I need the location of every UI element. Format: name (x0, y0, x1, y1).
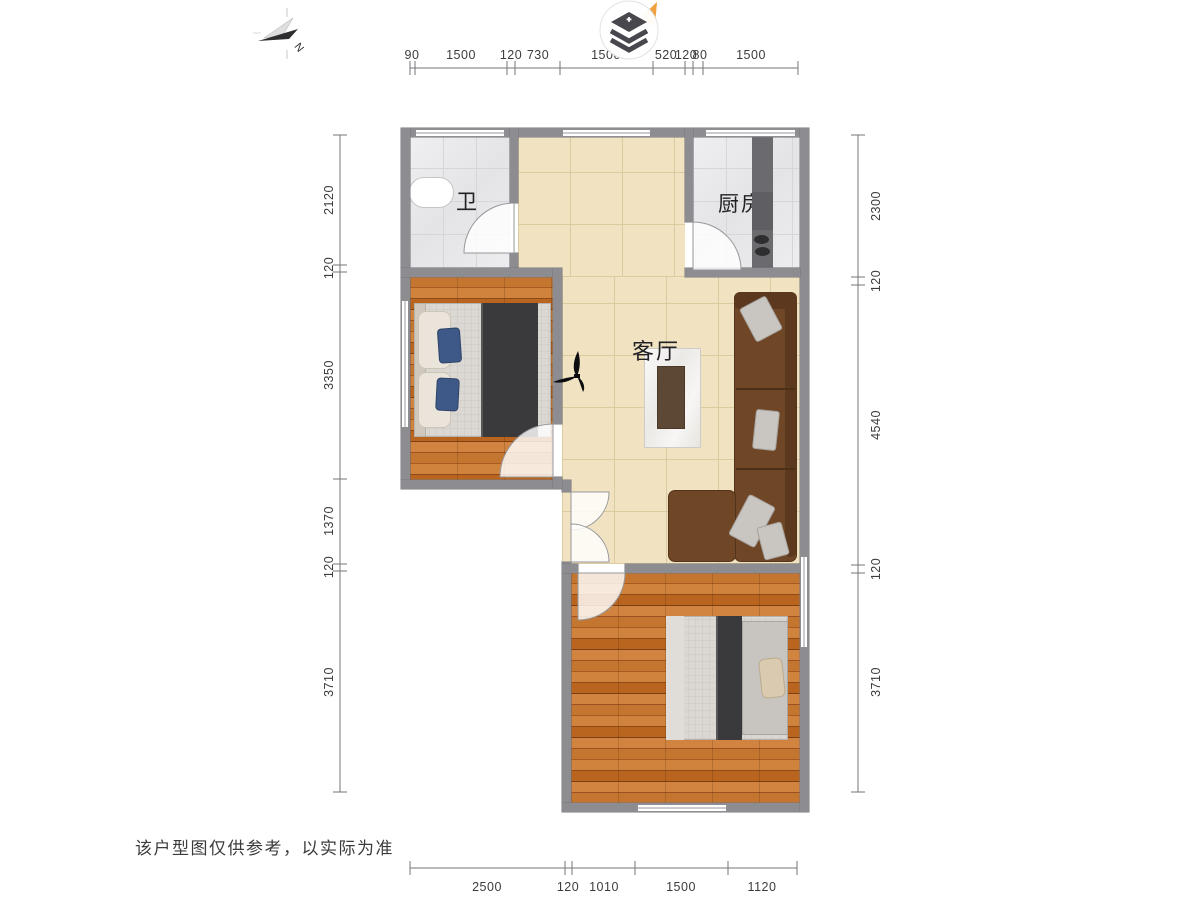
dim-top: 520 (655, 48, 677, 62)
dim-left: 120 (322, 257, 336, 279)
dim-top: 1500 (736, 48, 766, 62)
window-bedroom2-bottom (637, 804, 727, 812)
dim-left: 2120 (322, 185, 336, 215)
window-top-living (562, 129, 651, 137)
bedroom2-blanket (716, 616, 742, 740)
wall-bathroom-right-upper (510, 128, 518, 203)
top-ticks (410, 61, 798, 75)
bathroom-label: 卫 (456, 186, 479, 216)
window-right-side (800, 556, 808, 648)
stove-burner (755, 247, 770, 256)
wall-bedroom2-top-left (562, 564, 578, 573)
dim-left: 3350 (322, 360, 336, 390)
dim-top: 90 (405, 48, 420, 62)
bed-pillow-blue (437, 327, 462, 364)
bedroom1-blanket (481, 303, 538, 437)
dim-bottom: 1120 (748, 880, 777, 894)
bed-pillow-blue (435, 377, 460, 411)
dim-top: 1500 (591, 48, 621, 62)
sofa-backrest (785, 297, 796, 557)
dim-right: 120 (869, 270, 883, 292)
dim-bottom: 2500 (472, 880, 502, 894)
dim-left: 1370 (322, 506, 336, 536)
dim-right: 120 (869, 558, 883, 580)
wall-entry-left-lower (562, 562, 571, 812)
wall-bedroom1-bottom (401, 480, 571, 489)
sofa-chaise (668, 490, 736, 562)
dim-right: 4540 (869, 410, 883, 440)
wall-entry-left-upper (562, 480, 571, 492)
wall-right (800, 128, 809, 812)
bathtub (409, 177, 454, 208)
wall-kitchen-left (685, 128, 693, 222)
bedroom2-sheet (666, 616, 684, 740)
wall-bathroom-bottom (401, 268, 562, 277)
window-top-kitchen (705, 129, 796, 137)
compass-icon: N (253, 8, 306, 59)
window-top-bathroom (415, 129, 505, 137)
window-bedroom1-left (401, 300, 409, 428)
bottom-ticks (410, 861, 797, 875)
dim-right: 3710 (869, 667, 883, 697)
sofa-pillow (752, 409, 780, 451)
dim-bottom: 1010 (589, 880, 619, 894)
dim-right: 2300 (869, 191, 883, 221)
dim-top: 120 (500, 48, 522, 62)
stove-burner (754, 235, 769, 244)
living-label: 客厅 (632, 334, 680, 366)
dim-top: 730 (527, 48, 549, 62)
living-floor-top (518, 137, 685, 277)
sofa-seam (736, 468, 795, 470)
dim-top: 80 (693, 48, 708, 62)
right-ticks (851, 135, 865, 792)
dim-left: 120 (322, 556, 336, 578)
sofa-seam (736, 388, 795, 390)
wall-kitchen-bottom (685, 268, 800, 277)
wall-bedroom2-top-right (625, 564, 800, 573)
dim-top: 1500 (446, 48, 476, 62)
kitchen-counter-dark (752, 192, 773, 230)
dim-bottom: 1500 (666, 880, 696, 894)
wall-bedroom1-right-upper (553, 268, 562, 424)
disclaimer-text: 该户型图仅供参考，以实际为准 (135, 834, 394, 859)
wall-bedroom1-right-stub (553, 477, 562, 489)
dim-left: 3710 (322, 667, 336, 697)
bedroom2-pillow (758, 657, 786, 699)
floorplan-page: 卫 厨房 客厅 (0, 0, 1200, 900)
compass-north-label: N (291, 41, 305, 55)
coffee-table-top (657, 366, 685, 429)
dim-bottom: 120 (557, 880, 579, 894)
